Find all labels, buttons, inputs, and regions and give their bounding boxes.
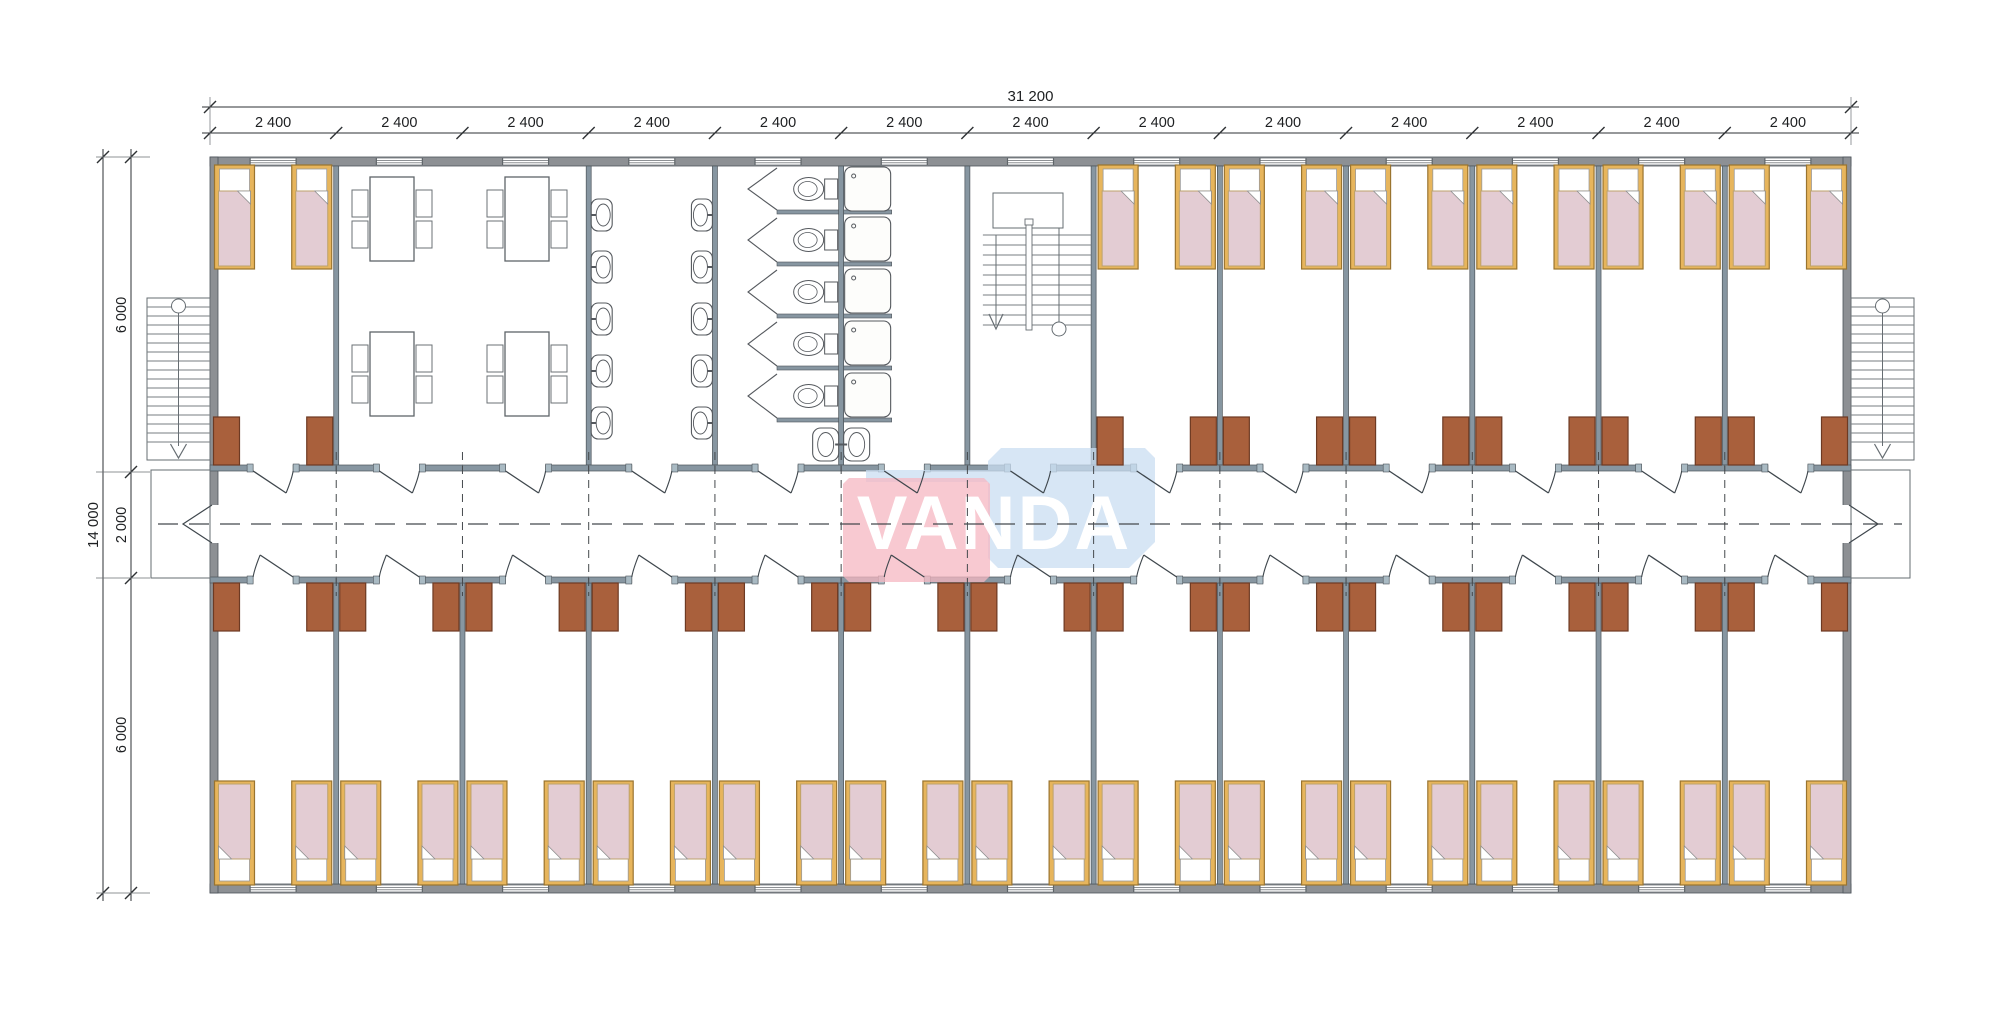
- stair-divider: [1026, 222, 1032, 330]
- window: [1512, 885, 1558, 892]
- dim-label-bay: 2 400: [255, 115, 291, 131]
- bed-mattress: [1481, 784, 1513, 859]
- bed: [1729, 165, 1769, 269]
- bed-mattress: [1684, 191, 1716, 266]
- corridor-wall: [715, 577, 758, 583]
- window: [376, 885, 422, 892]
- window: [881, 885, 927, 892]
- cabinet: [1350, 583, 1376, 631]
- bed-mattress: [1432, 191, 1464, 266]
- bed-mattress: [1684, 784, 1716, 859]
- corridor-wall-cap: [419, 464, 425, 472]
- corridor-wall: [1303, 577, 1346, 583]
- corridor-wall: [1808, 577, 1851, 583]
- corridor-wall: [1051, 577, 1094, 583]
- corridor-wall: [798, 465, 841, 471]
- corridor-wall-cap: [1051, 576, 1057, 584]
- bed: [1049, 781, 1089, 885]
- stair-start-circle: [172, 299, 186, 313]
- toilet-tank: [825, 386, 838, 406]
- bed-pillow: [1482, 857, 1512, 881]
- cabinet: [592, 583, 618, 631]
- corridor-wall: [462, 577, 505, 583]
- corridor-wall: [336, 465, 379, 471]
- corridor-wall: [715, 465, 758, 471]
- bed-mattress: [1811, 784, 1843, 859]
- bed: [292, 165, 332, 269]
- corridor-wall-cap: [247, 576, 253, 584]
- partition-wall-bottom: [1470, 583, 1475, 884]
- cabinet: [307, 417, 333, 465]
- corridor-wall-cap: [500, 464, 506, 472]
- window: [503, 158, 549, 165]
- shower-stall: [845, 373, 891, 417]
- chair: [487, 221, 503, 248]
- bed: [1807, 165, 1847, 269]
- corridor-wall-cap: [1682, 576, 1688, 584]
- cabinet: [1223, 417, 1249, 465]
- corridor-wall-cap: [293, 464, 299, 472]
- bed-pillow: [1229, 169, 1259, 193]
- bed: [593, 781, 633, 885]
- window: [629, 885, 675, 892]
- corridor-wall-cap: [672, 464, 678, 472]
- cabinet: [1822, 583, 1848, 631]
- partition-wall-top: [712, 166, 717, 465]
- bed-pillow: [1356, 857, 1386, 881]
- toilet: [794, 281, 838, 304]
- chair: [416, 345, 432, 372]
- stall-partition: [777, 418, 839, 422]
- corridor-wall: [546, 577, 589, 583]
- cabinet: [1695, 583, 1721, 631]
- bed-mattress: [723, 784, 755, 859]
- bed: [1807, 781, 1847, 885]
- bed-pillow: [423, 857, 453, 881]
- bed-pillow: [977, 857, 1007, 881]
- chair: [416, 221, 432, 248]
- bed-pillow: [297, 857, 327, 881]
- bed-pillow: [1482, 169, 1512, 193]
- bed: [1554, 165, 1594, 269]
- chair: [352, 190, 368, 217]
- window: [1008, 158, 1054, 165]
- toilet-tank: [825, 179, 838, 199]
- shower-partition: [844, 366, 892, 370]
- dim-label-total-width: 31 200: [1008, 88, 1054, 105]
- chair: [352, 221, 368, 248]
- bed: [719, 781, 759, 885]
- toilet: [794, 229, 838, 252]
- bed-pillow: [1812, 169, 1842, 193]
- corridor-wall-cap: [1429, 576, 1435, 584]
- corridor-wall-cap: [546, 576, 552, 584]
- shower-stall: [845, 167, 891, 211]
- corridor-wall: [672, 465, 715, 471]
- bed: [292, 781, 332, 885]
- wash-basin: [691, 251, 712, 283]
- bed-pillow: [802, 857, 832, 881]
- cabinet: [1602, 417, 1628, 465]
- corridor-wall-cap: [1762, 576, 1768, 584]
- corridor-wall: [1220, 577, 1263, 583]
- corridor-wall-cap: [1177, 576, 1183, 584]
- corridor-wall: [1599, 577, 1642, 583]
- corridor-wall-cap: [373, 576, 379, 584]
- wash-basin: [591, 303, 612, 335]
- bed-pillow: [724, 857, 754, 881]
- bed: [1680, 781, 1720, 885]
- partition-wall-top: [965, 166, 970, 465]
- dim-label-bay: 2 400: [1770, 115, 1806, 131]
- bed-pillow: [1608, 169, 1638, 193]
- cabinet: [214, 583, 240, 631]
- shower-partition: [844, 418, 892, 422]
- dim-label-height-segment: 6 000: [114, 717, 130, 753]
- dim-label-height-segment: 6 000: [114, 297, 130, 333]
- bed-pillow: [1180, 857, 1210, 881]
- shower-stall: [845, 269, 891, 313]
- cabinet: [1443, 417, 1469, 465]
- cabinet: [466, 583, 492, 631]
- bed-mattress: [1481, 191, 1513, 266]
- bed-pillow: [549, 857, 579, 881]
- shower-stall: [845, 217, 891, 261]
- stall-partition: [777, 314, 839, 318]
- corridor-wall-cap: [626, 464, 632, 472]
- chair: [352, 376, 368, 403]
- shower-partition: [844, 314, 892, 318]
- cabinet: [1443, 583, 1469, 631]
- corridor-wall: [1177, 577, 1220, 583]
- chair: [487, 345, 503, 372]
- corridor-wall: [462, 465, 505, 471]
- bed-mattress: [219, 191, 251, 266]
- cabinet: [307, 583, 333, 631]
- wash-basin: [591, 199, 612, 231]
- partition-wall-bottom: [1596, 583, 1601, 884]
- corridor-wall: [1555, 465, 1598, 471]
- corridor-wall-cap: [1636, 576, 1642, 584]
- bed-pillow: [220, 857, 250, 881]
- corridor-wall: [1682, 465, 1725, 471]
- bed-pillow: [675, 857, 705, 881]
- dining-table: [505, 177, 549, 261]
- bed-mattress: [1102, 784, 1134, 859]
- window: [1134, 158, 1180, 165]
- chair: [551, 376, 567, 403]
- corridor-wall: [419, 577, 462, 583]
- corridor-wall: [293, 577, 336, 583]
- bed-pillow: [472, 857, 502, 881]
- bed-pillow: [1734, 169, 1764, 193]
- corridor-wall: [1725, 465, 1768, 471]
- bed-mattress: [1102, 191, 1134, 266]
- chair: [551, 221, 567, 248]
- corridor-wall: [210, 577, 253, 583]
- bed: [1477, 781, 1517, 885]
- bed-pillow: [1812, 857, 1842, 881]
- corridor-wall-cap: [672, 576, 678, 584]
- window: [1008, 885, 1054, 892]
- corridor-wall: [1472, 465, 1515, 471]
- stall-partition: [777, 262, 839, 266]
- partition-wall-bottom: [334, 583, 339, 884]
- wash-basin: [691, 355, 712, 387]
- cabinet: [1728, 583, 1754, 631]
- bed-pillow: [1307, 857, 1337, 881]
- dim-label-bay: 2 400: [1012, 115, 1048, 131]
- chair: [487, 190, 503, 217]
- cabinet: [214, 417, 240, 465]
- chair: [416, 376, 432, 403]
- corridor-wall-cap: [1636, 464, 1642, 472]
- bed-mattress: [927, 784, 959, 859]
- bed: [1224, 781, 1264, 885]
- bed-pillow: [1559, 169, 1589, 193]
- cabinet: [1822, 417, 1848, 465]
- cabinet: [559, 583, 585, 631]
- bed: [467, 781, 507, 885]
- dim-label-bay: 2 400: [760, 115, 796, 131]
- corridor-wall: [672, 577, 715, 583]
- window: [1386, 158, 1432, 165]
- cabinet: [1350, 417, 1376, 465]
- bed: [1729, 781, 1769, 885]
- bed-mattress: [801, 784, 833, 859]
- bed-mattress: [1811, 191, 1843, 266]
- bed-mattress: [548, 784, 580, 859]
- bed-mattress: [1355, 784, 1387, 859]
- stall-partition: [777, 210, 839, 214]
- corridor-wall-cap: [1303, 576, 1309, 584]
- dim-label-bay: 2 400: [1517, 115, 1553, 131]
- cabinet: [1223, 583, 1249, 631]
- stair-divider-cap: [1025, 219, 1033, 225]
- cabinet: [1317, 583, 1343, 631]
- chair: [551, 190, 567, 217]
- dim-label-bay: 2 400: [886, 115, 922, 131]
- window: [629, 158, 675, 165]
- partition-wall-top: [839, 166, 844, 465]
- dim-label-bay: 2 400: [381, 115, 417, 131]
- bed: [1098, 781, 1138, 885]
- corridor-wall-cap: [1303, 464, 1309, 472]
- corridor-wall: [1725, 577, 1768, 583]
- floor-plan-drawing: VANDA31 2002 4002 4002 4002 4002 4002 40…: [0, 0, 2000, 1032]
- corridor-wall: [1682, 577, 1725, 583]
- wash-basin: [813, 428, 839, 461]
- window: [1639, 158, 1685, 165]
- toilet: [794, 333, 838, 356]
- window: [1765, 158, 1811, 165]
- window: [503, 885, 549, 892]
- wash-basin: [591, 407, 612, 439]
- bed-pillow: [1559, 857, 1589, 881]
- corridor-wall: [210, 465, 253, 471]
- bed: [670, 781, 710, 885]
- corridor-wall: [1599, 465, 1642, 471]
- bed-mattress: [471, 784, 503, 859]
- corridor-wall-cap: [1762, 464, 1768, 472]
- bed: [972, 781, 1012, 885]
- corridor-wall-cap: [1131, 576, 1137, 584]
- bed: [341, 781, 381, 885]
- bed: [1680, 165, 1720, 269]
- corridor-wall: [1429, 465, 1472, 471]
- cabinet: [340, 583, 366, 631]
- cabinet: [1317, 417, 1343, 465]
- toilet-tank: [825, 334, 838, 354]
- bed-mattress: [219, 784, 251, 859]
- partition-wall-bottom: [1091, 583, 1096, 884]
- cabinet: [1602, 583, 1628, 631]
- corridor-wall-cap: [626, 576, 632, 584]
- bed-pillow: [1054, 857, 1084, 881]
- cabinet: [1569, 583, 1595, 631]
- bed-mattress: [1558, 784, 1590, 859]
- partition-wall-top: [1596, 166, 1601, 465]
- partition-wall-top: [586, 166, 591, 465]
- bed: [215, 781, 255, 885]
- corridor-wall-cap: [1257, 464, 1263, 472]
- cabinet: [433, 583, 459, 631]
- bed-pillow: [1734, 857, 1764, 881]
- partition-wall-bottom: [1217, 583, 1222, 884]
- dining-table: [370, 177, 414, 261]
- wash-basin: [691, 199, 712, 231]
- dim-label-bay: 2 400: [634, 115, 670, 131]
- bed-mattress: [1179, 191, 1211, 266]
- stair-start-circle: [1876, 299, 1890, 313]
- bed-mattress: [422, 784, 454, 859]
- bed-mattress: [1733, 191, 1765, 266]
- bed-pillow: [1356, 169, 1386, 193]
- partition-wall-top: [1722, 166, 1727, 465]
- toilet-tank: [825, 282, 838, 302]
- bed-pillow: [1685, 169, 1715, 193]
- corridor-wall: [1346, 465, 1389, 471]
- bed-mattress: [674, 784, 706, 859]
- chair: [487, 376, 503, 403]
- corridor-end-opening-left: [210, 505, 219, 543]
- chair: [352, 345, 368, 372]
- window: [1260, 158, 1306, 165]
- bed: [1477, 165, 1517, 269]
- bed: [1603, 165, 1643, 269]
- cabinet: [1097, 417, 1123, 465]
- corridor-wall-cap: [1509, 464, 1515, 472]
- window: [1386, 885, 1432, 892]
- corridor-wall: [1094, 577, 1137, 583]
- dim-label-bay: 2 400: [1644, 115, 1680, 131]
- window: [376, 158, 422, 165]
- bed: [418, 781, 458, 885]
- cabinet: [1064, 583, 1090, 631]
- corridor-wall-cap: [1257, 576, 1263, 584]
- bed: [544, 781, 584, 885]
- corridor-wall-cap: [798, 464, 804, 472]
- wash-basin: [844, 428, 870, 461]
- wash-basin: [591, 355, 612, 387]
- bed-mattress: [597, 784, 629, 859]
- bed: [1224, 165, 1264, 269]
- window: [250, 158, 296, 165]
- bed-pillow: [598, 857, 628, 881]
- bed-mattress: [976, 784, 1008, 859]
- bed-pillow: [1180, 169, 1210, 193]
- bed-mattress: [1558, 191, 1590, 266]
- dim-label-bay: 2 400: [507, 115, 543, 131]
- bed-pillow: [851, 857, 881, 881]
- partition-wall-bottom: [712, 583, 717, 884]
- bed-pillow: [1433, 169, 1463, 193]
- bed-pillow: [220, 169, 250, 193]
- bed-pillow: [928, 857, 958, 881]
- bed-pillow: [1229, 857, 1259, 881]
- bed: [1428, 781, 1468, 885]
- bed: [1175, 781, 1215, 885]
- partition-wall-top: [1217, 166, 1222, 465]
- cabinet: [1728, 417, 1754, 465]
- bed-mattress: [1607, 784, 1639, 859]
- corridor-wall-cap: [1383, 464, 1389, 472]
- stair-start-circle: [1052, 322, 1066, 336]
- window: [881, 158, 927, 165]
- chair: [551, 345, 567, 372]
- corridor-wall-cap: [1383, 576, 1389, 584]
- bed: [1175, 165, 1215, 269]
- window: [755, 158, 801, 165]
- cabinet: [971, 583, 997, 631]
- corridor-wall: [589, 577, 632, 583]
- partition-wall-top: [334, 166, 339, 465]
- corridor-wall-cap: [1682, 464, 1688, 472]
- dim-label-total-height: 14 000: [85, 502, 102, 548]
- bed-pillow: [1103, 857, 1133, 881]
- stall-partition: [777, 366, 839, 370]
- bed: [1603, 781, 1643, 885]
- corridor-wall: [1346, 577, 1389, 583]
- window: [1512, 158, 1558, 165]
- floor-plan-page: VANDA31 2002 4002 4002 4002 4002 4002 40…: [0, 0, 2000, 1032]
- bed-pillow: [1433, 857, 1463, 881]
- corridor-wall-cap: [1808, 464, 1814, 472]
- corridor-wall-cap: [1005, 576, 1011, 584]
- corridor-wall-cap: [1429, 464, 1435, 472]
- bed-mattress: [1306, 784, 1338, 859]
- partition-wall-bottom: [460, 583, 465, 884]
- toilet: [794, 385, 838, 408]
- corridor-wall: [336, 577, 379, 583]
- window: [1134, 885, 1180, 892]
- bed-mattress: [1228, 784, 1260, 859]
- corridor-wall: [798, 577, 841, 583]
- partition-wall-bottom: [586, 583, 591, 884]
- window: [250, 885, 296, 892]
- corridor-wall-cap: [419, 576, 425, 584]
- corridor-wall: [1303, 465, 1346, 471]
- bed-pillow: [346, 857, 376, 881]
- bed-pillow: [1103, 169, 1133, 193]
- bed-mattress: [296, 784, 328, 859]
- bed-mattress: [850, 784, 882, 859]
- shower-partition: [844, 262, 892, 266]
- bed: [1428, 165, 1468, 269]
- dining-table: [370, 332, 414, 416]
- dim-label-bay: 2 400: [1265, 115, 1301, 131]
- cabinet: [1190, 417, 1216, 465]
